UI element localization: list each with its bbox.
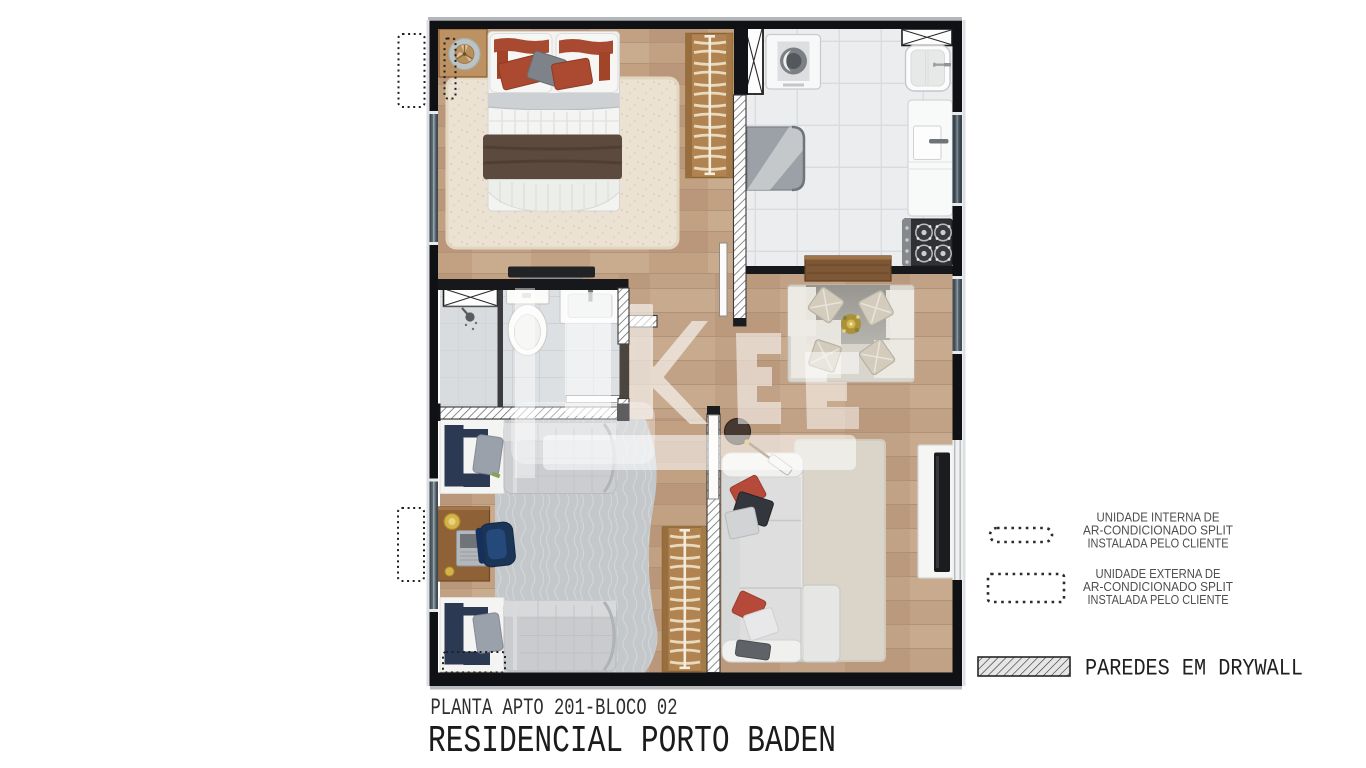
svg-text:INSTALADA PELO CLIENTE: INSTALADA PELO CLIENTE [1088,592,1229,607]
svg-text:PLANTA APTO 201-BLOCO 02: PLANTA APTO 201-BLOCO 02 [431,695,678,721]
svg-text:INSTALADA PELO CLIENTE: INSTALADA PELO CLIENTE [1088,536,1229,551]
svg-text:PAREDES EM DRYWALL: PAREDES EM DRYWALL [1085,656,1303,682]
svg-text:RESIDENCIAL PORTO BADEN: RESIDENCIAL PORTO BADEN [428,720,836,763]
